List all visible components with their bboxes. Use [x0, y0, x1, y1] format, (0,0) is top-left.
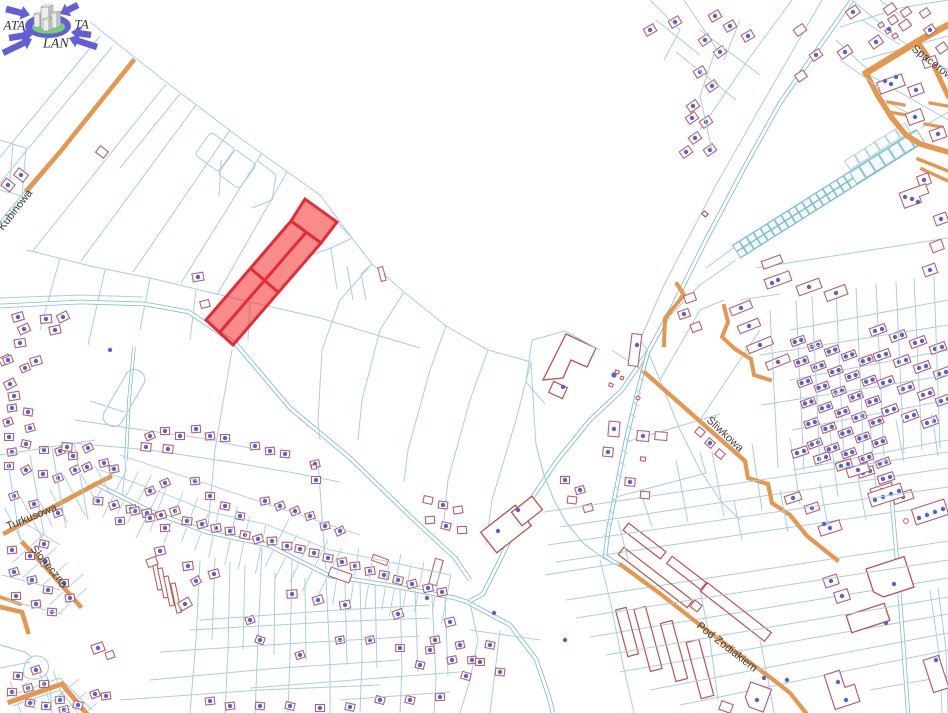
svg-text:Kubinowa: Kubinowa: [0, 187, 36, 233]
svg-text:TA: TA: [75, 17, 89, 32]
svg-text:Pod Zodiakiem: Pod Zodiakiem: [694, 620, 759, 675]
svg-text:Śliwkowa: Śliwkowa: [704, 414, 747, 455]
svg-text:LAN: LAN: [42, 37, 69, 52]
svg-text:ATA: ATA: [3, 18, 26, 33]
